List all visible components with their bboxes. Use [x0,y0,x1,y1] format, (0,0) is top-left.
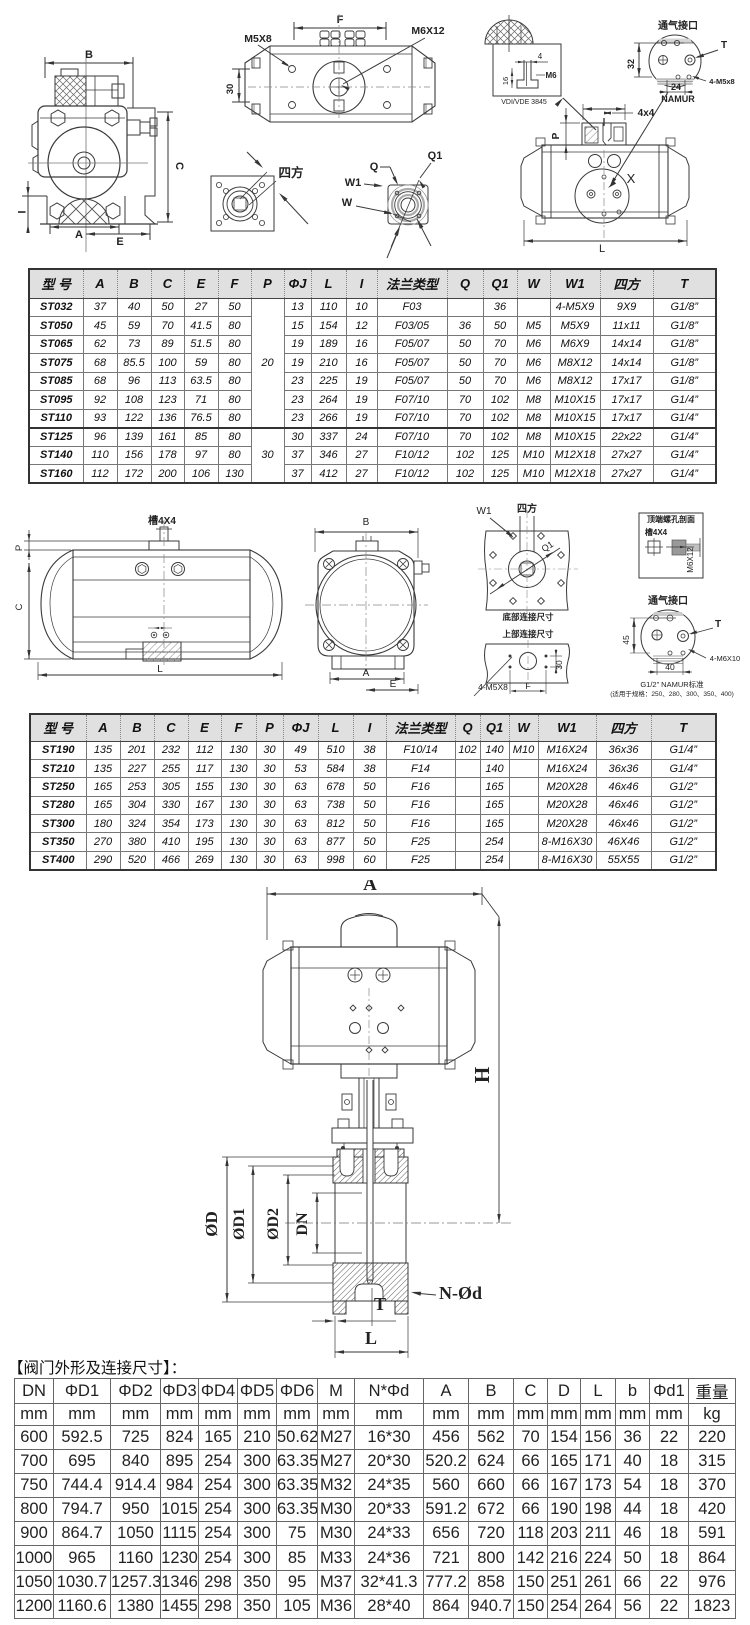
svg-text:L: L [365,1328,377,1348]
svg-text:H: H [470,1067,494,1083]
svg-text:A: A [363,668,370,679]
svg-text:DN: DN [294,1212,311,1236]
svg-text:W1: W1 [345,177,362,189]
svg-text:上部连接尺寸: 上部连接尺寸 [502,629,554,639]
svg-text:P: P [551,132,562,139]
svg-text:P: P [14,545,25,551]
svg-text:E: E [390,679,397,690]
svg-text:通气接口: 通气接口 [658,19,698,32]
svg-text:(适用于规格：250、280、300、350、400): (适用于规格：250、280、300、350、400) [610,689,734,698]
svg-text:M6: M6 [545,71,557,80]
svg-text:X: X [627,171,636,186]
svg-text:ØD1: ØD1 [231,1208,248,1240]
svg-text:四方: 四方 [278,165,303,180]
svg-text:T: T [715,619,721,630]
svg-text:M6X12: M6X12 [686,547,695,573]
svg-text:B: B [363,517,370,528]
svg-text:Q1: Q1 [428,150,443,162]
svg-text:30: 30 [225,84,236,95]
svg-text:24: 24 [671,82,681,92]
svg-text:M5X8: M5X8 [244,33,272,45]
svg-text:N-Ød: N-Ød [439,1283,482,1303]
svg-text:槽4X4: 槽4X4 [148,514,176,527]
svg-text:槽4X4: 槽4X4 [645,527,668,537]
svg-text:W1: W1 [477,506,492,517]
svg-text:顶端螺孔剖面: 顶端螺孔剖面 [647,514,695,524]
svg-text:C: C [14,603,25,610]
svg-text:L: L [157,664,163,675]
svg-text:C: C [173,162,185,170]
svg-text:4x4: 4x4 [638,108,655,119]
svg-text:F: F [337,14,344,26]
svg-text:底部连接尺寸: 底部连接尺寸 [502,612,554,622]
svg-text:VDI/VDE 3845: VDI/VDE 3845 [501,99,547,106]
svg-text:45: 45 [621,635,631,645]
svg-text:16: 16 [501,77,510,85]
svg-text:Q: Q [370,161,379,173]
svg-text:40: 40 [665,662,675,672]
svg-text:A: A [75,229,83,241]
svg-text:W: W [342,197,353,209]
svg-text:F: F [525,681,531,691]
svg-text:E: E [116,236,123,248]
svg-text:A: A [363,880,377,895]
svg-text:G1/2” NAMUR标准: G1/2” NAMUR标准 [640,679,704,689]
svg-text:T: T [721,40,727,51]
svg-text:I: I [15,210,27,213]
svg-text:30: 30 [554,660,564,670]
svg-text:ØD: ØD [202,1211,221,1237]
svg-text:L: L [599,243,605,255]
svg-text:32: 32 [626,59,636,69]
svg-text:Q1: Q1 [540,539,556,554]
svg-text:通气接口: 通气接口 [648,594,688,607]
svg-text:T: T [374,1294,386,1314]
svg-text:4-M6X10: 4-M6X10 [710,654,740,663]
svg-text:M6X12: M6X12 [411,25,444,37]
svg-text:4: 4 [538,52,543,61]
svg-text:4-M5x8: 4-M5x8 [709,77,734,86]
svg-text:ØD2: ØD2 [265,1208,282,1240]
